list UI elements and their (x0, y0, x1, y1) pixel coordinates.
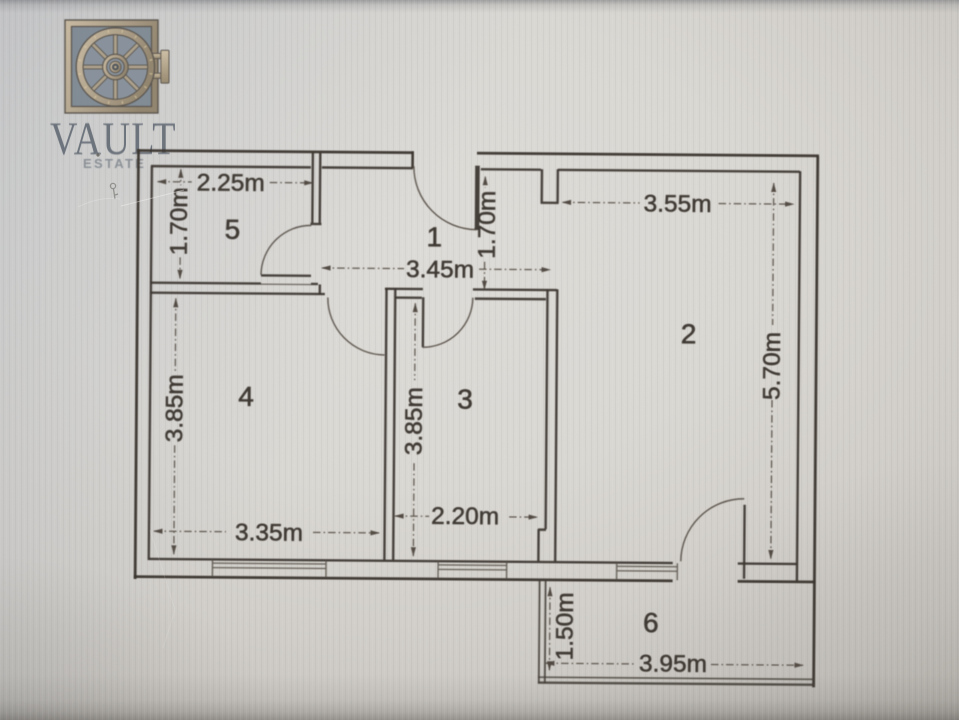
svg-text:2: 2 (681, 318, 697, 349)
svg-text:1: 1 (426, 221, 442, 252)
svg-text:3.55m: 3.55m (643, 190, 711, 218)
svg-text:3.45m: 3.45m (406, 256, 474, 284)
svg-text:6: 6 (643, 607, 659, 638)
svg-text:1.50m: 1.50m (551, 592, 579, 660)
svg-text:1.70m: 1.70m (166, 187, 194, 255)
svg-text:2.25m: 2.25m (197, 169, 265, 197)
svg-text:4: 4 (238, 381, 254, 412)
svg-text:3.85m: 3.85m (401, 387, 429, 455)
svg-text:1.70m: 1.70m (474, 191, 502, 259)
svg-text:3.85m: 3.85m (161, 374, 189, 442)
svg-text:5: 5 (224, 214, 240, 245)
svg-text:3: 3 (457, 384, 473, 415)
svg-text:3.95m: 3.95m (639, 650, 707, 678)
svg-text:5.70m: 5.70m (759, 332, 787, 400)
svg-text:2.20m: 2.20m (431, 503, 499, 531)
svg-text:3.35m: 3.35m (235, 519, 303, 547)
